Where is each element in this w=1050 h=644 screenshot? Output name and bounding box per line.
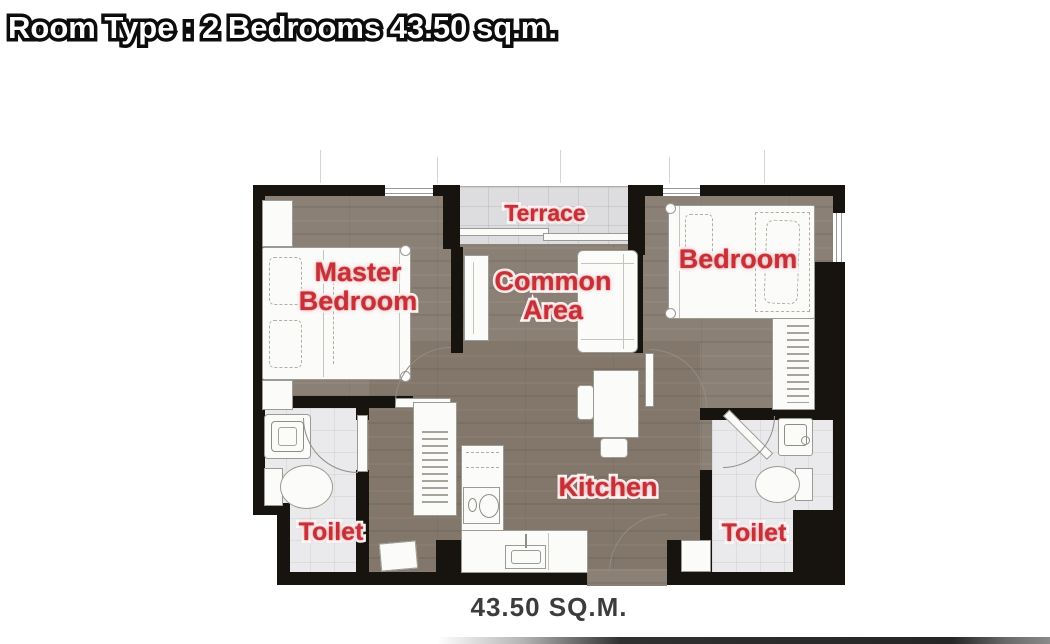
wardrobe [262, 200, 293, 247]
dimension-tick [320, 150, 321, 183]
dimension-tick [764, 150, 765, 183]
room-label-master-bedroom: Master Bedroom [293, 258, 423, 316]
room-label-bedroom: Bedroom [678, 245, 798, 274]
room-label-terrace: Terrace [458, 201, 632, 226]
wall [667, 540, 681, 585]
bed-post [665, 203, 676, 214]
door-leaf [379, 540, 418, 571]
door-leaf [357, 415, 368, 472]
wardrobe [772, 318, 815, 410]
dimension-tick [669, 157, 670, 183]
dimension-tick [560, 150, 561, 183]
bottom-bar [437, 637, 1050, 644]
wall [815, 262, 845, 420]
room-label-kitchen: Kitchen [548, 473, 668, 502]
wall [277, 572, 845, 585]
washing-machine [463, 487, 500, 524]
hall-closet [413, 402, 457, 516]
tv-console [464, 255, 489, 341]
window [385, 185, 433, 196]
bed-post [665, 308, 676, 319]
sliding-door-panel [543, 233, 632, 241]
sliding-door-panel [459, 228, 549, 236]
window [663, 185, 700, 196]
wall [436, 540, 461, 585]
floor-plan: Terrace Master Bedroom Common Area Bedro… [253, 183, 845, 585]
room-label-toilet-left: Toilet [281, 519, 381, 546]
toilet-bowl [755, 466, 800, 503]
room-label-common-area: Common Area [488, 267, 618, 325]
wall [451, 247, 463, 353]
kitchen-sink [505, 545, 546, 569]
bed-post [400, 245, 411, 256]
chair [600, 438, 628, 458]
toilet-bowl [280, 465, 333, 509]
exterior-notch [253, 515, 277, 585]
chair [577, 385, 594, 420]
dimension-tick [437, 157, 438, 183]
bathroom-sink [778, 418, 813, 456]
window [833, 213, 845, 265]
table [593, 370, 639, 438]
area-caption: 43.50 SQ.M. [253, 592, 845, 623]
wardrobe [262, 380, 293, 410]
page-title: Room Type : 2 Bedrooms 43.50 sq.m. [8, 10, 557, 46]
room-label-toilet-right: Toilet [704, 520, 804, 547]
